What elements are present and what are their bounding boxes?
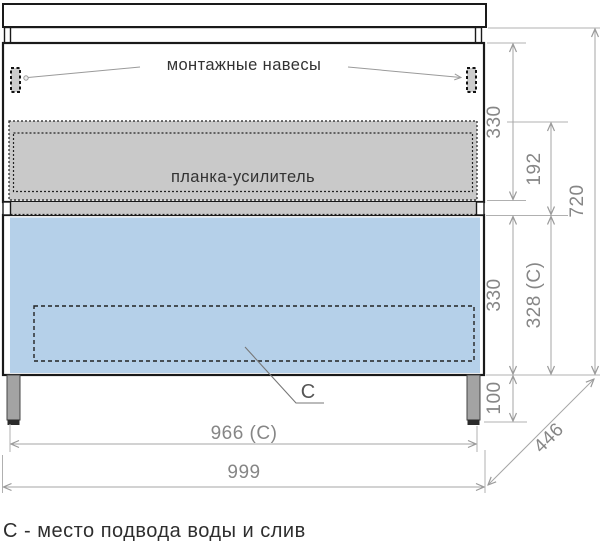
- legend-note: С - место подвода воды и слив: [3, 520, 306, 542]
- leg-right: [467, 375, 480, 420]
- dim-328: 328 (С): [524, 262, 545, 329]
- mid-divider: [3, 202, 484, 215]
- dim-720: 720: [567, 184, 588, 217]
- drawing-canvas: монтажные навесы планка-усилитель С 330 …: [0, 0, 600, 545]
- dim-100: 100: [484, 381, 505, 414]
- hanger-leader-dot: [24, 76, 28, 80]
- side-panel-end-left: [3, 202, 11, 215]
- connection-marker-label: С: [301, 381, 315, 403]
- dim-999: 999: [227, 462, 260, 483]
- dim-966: 966 (С): [211, 423, 278, 444]
- reinforcement-bar-label: планка-усилитель: [171, 168, 315, 186]
- mounting-hanger-right: [467, 68, 476, 92]
- legs: [7, 375, 480, 425]
- side-panel-end-right: [477, 202, 485, 215]
- drawer-front-panel: [10, 218, 480, 374]
- dim-192: 192: [524, 152, 545, 185]
- divider-bar: [11, 202, 477, 215]
- countertop: [3, 4, 486, 27]
- leg-left: [7, 375, 20, 420]
- dim-330-top: 330: [484, 105, 505, 138]
- leg-foot-right: [468, 420, 480, 426]
- top-rail: [5, 28, 482, 44]
- reinforcement-bar: [9, 121, 477, 200]
- drawer-front: [10, 218, 480, 374]
- dim-446: 446: [530, 419, 568, 457]
- vanity-technical-drawing: монтажные навесы планка-усилитель С 330 …: [0, 0, 600, 545]
- leg-foot-left: [8, 420, 20, 426]
- mounting-hangers-label: монтажные навесы: [167, 56, 322, 74]
- mounting-hanger-left: [11, 68, 20, 92]
- dim-330-bottom: 330: [484, 278, 505, 311]
